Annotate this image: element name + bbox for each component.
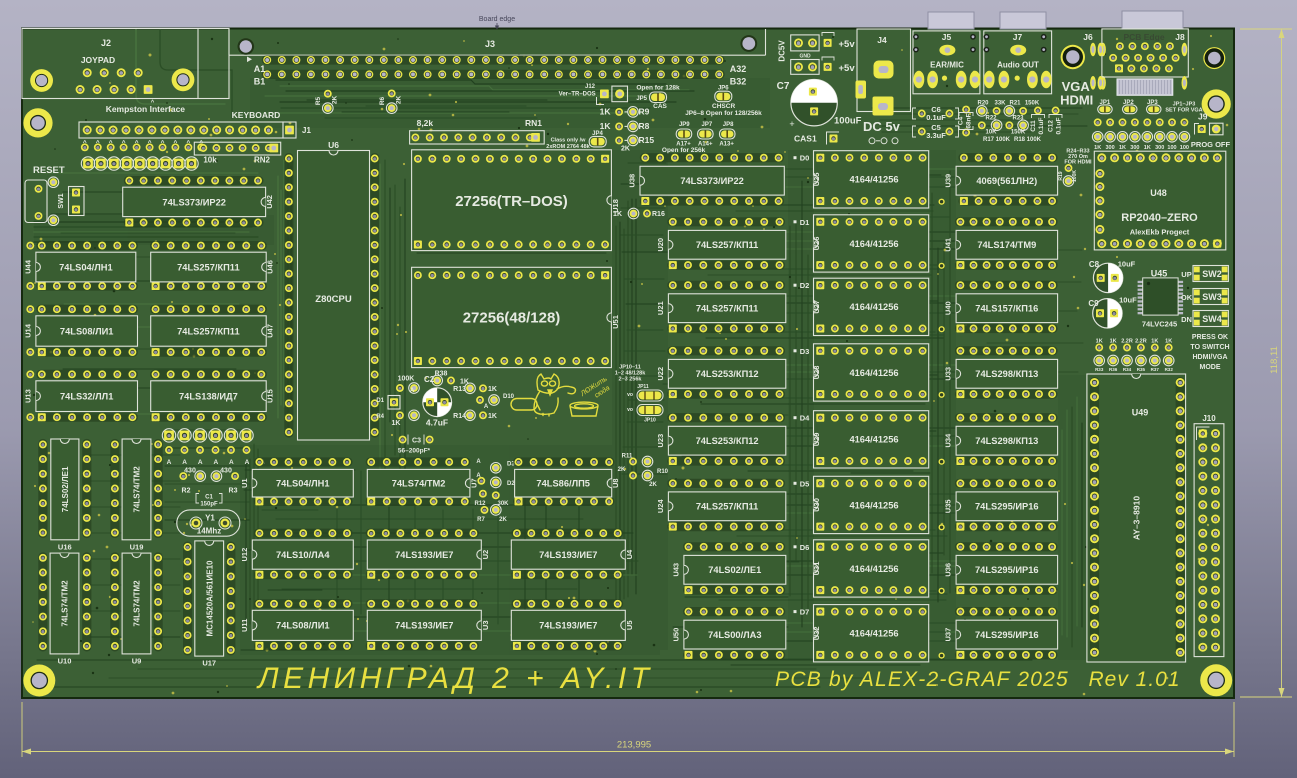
svg-text:1K: 1K	[1144, 145, 1151, 151]
svg-text:DC 5v: DC 5v	[863, 119, 901, 134]
svg-text:0.1uF: 0.1uF	[926, 113, 946, 122]
svg-text:U3: U3	[481, 621, 490, 631]
svg-text:27256(TR–DOS): 27256(TR–DOS)	[455, 193, 568, 210]
svg-text:100: 100	[1180, 145, 1189, 151]
svg-text:4164/41256: 4164/41256	[849, 368, 898, 378]
svg-text:U25: U25	[812, 173, 821, 187]
svg-text:2xROM 2764 48k: 2xROM 2764 48k	[546, 144, 590, 150]
svg-text:U24: U24	[656, 499, 665, 514]
svg-text:4164/41256: 4164/41256	[849, 435, 898, 445]
svg-text:2–3 256k: 2–3 256k	[619, 377, 643, 383]
svg-text:C1: C1	[205, 495, 213, 501]
svg-text:R3: R3	[229, 488, 238, 495]
svg-text:74LS174/ТМ9: 74LS174/ТМ9	[977, 240, 1036, 250]
svg-text:Audio OUT: Audio OUT	[997, 61, 1039, 70]
svg-text:DN: DN	[1181, 315, 1192, 324]
svg-text:RESET: RESET	[33, 165, 65, 176]
svg-text:CAS: CAS	[653, 103, 667, 110]
svg-text:U16: U16	[58, 542, 72, 551]
svg-text:0.1uF: 0.1uF	[1056, 117, 1063, 134]
svg-text:74LS193/ИЕ7: 74LS193/ИЕ7	[539, 621, 597, 631]
svg-text:2K: 2K	[621, 146, 630, 153]
svg-text:1K: 1K	[392, 420, 401, 427]
svg-text:213,995: 213,995	[617, 740, 651, 751]
svg-text:150pF: 150pF	[200, 502, 218, 508]
svg-text:R14: R14	[453, 413, 466, 420]
svg-text:U1: U1	[240, 478, 249, 488]
svg-text:4164/41256: 4164/41256	[849, 175, 898, 185]
svg-text:2K: 2K	[649, 482, 657, 488]
svg-text:PRESS OK: PRESS OK	[1192, 334, 1228, 341]
svg-text:118,11: 118,11	[1269, 346, 1280, 374]
svg-text:PCB by ALEX-2-GRAF 2025: PCB by ALEX-2-GRAF 2025	[775, 668, 1069, 691]
svg-text:74LS295/ИР16: 74LS295/ИР16	[975, 565, 1039, 575]
svg-text:74LS74/ТМ2: 74LS74/ТМ2	[392, 479, 446, 489]
svg-text:U17: U17	[202, 659, 216, 668]
svg-text:Ver–TR–DOS: Ver–TR–DOS	[559, 92, 596, 98]
svg-text:SW3: SW3	[1202, 292, 1222, 302]
svg-text:C4: C4	[958, 116, 965, 125]
svg-text:R15: R15	[639, 135, 655, 145]
svg-text:D6: D6	[800, 543, 810, 552]
svg-text:D1: D1	[800, 218, 810, 227]
svg-text:U44: U44	[23, 259, 32, 274]
svg-text:Z80CPU: Z80CPU	[315, 294, 352, 305]
svg-text:U13: U13	[23, 389, 32, 403]
svg-text:U8: U8	[611, 478, 620, 488]
svg-text:SW1: SW1	[58, 193, 65, 208]
svg-text:C8: C8	[1089, 260, 1100, 269]
svg-text:J10: J10	[1202, 414, 1216, 423]
svg-text:74LVC245: 74LVC245	[1142, 320, 1177, 329]
svg-text:68nF: 68nF	[966, 113, 973, 128]
svg-text:A13+: A13+	[719, 141, 734, 147]
svg-text:D1: D1	[376, 398, 384, 404]
svg-text:U28: U28	[812, 366, 821, 380]
svg-text:A: A	[229, 459, 234, 466]
svg-text:U40: U40	[944, 301, 953, 315]
svg-text:C9: C9	[1088, 299, 1099, 308]
svg-text:U7: U7	[469, 478, 478, 488]
svg-text:U19: U19	[130, 542, 144, 551]
svg-text:R6: R6	[379, 96, 386, 105]
svg-text:RP2040–ZERO: RP2040–ZERO	[1121, 212, 1198, 224]
svg-text:D4: D4	[800, 414, 810, 423]
svg-text:PROG OFF: PROG OFF	[1191, 140, 1231, 149]
svg-text:100uF: 100uF	[834, 116, 862, 127]
svg-text:PCB Edge: PCB Edge	[1123, 32, 1164, 42]
svg-text:1K: 1K	[1119, 145, 1126, 151]
svg-text:U14: U14	[23, 323, 32, 338]
svg-text:74LS193/ИЕ7: 74LS193/ИЕ7	[395, 621, 453, 631]
svg-text:74LS02/ЛЕ1: 74LS02/ЛЕ1	[708, 565, 761, 575]
svg-text:R18 100K: R18 100K	[1014, 137, 1042, 143]
svg-text:74LS295/ИР16: 74LS295/ИР16	[975, 630, 1039, 640]
svg-text:Board edge: Board edge	[479, 16, 515, 23]
svg-text:74LS04/ЛН1: 74LS04/ЛН1	[59, 262, 113, 272]
svg-text:74LS04/ЛН1: 74LS04/ЛН1	[276, 479, 330, 489]
svg-text:74LS157/КП16: 74LS157/КП16	[975, 304, 1038, 314]
svg-text:JOYPAD: JOYPAD	[81, 55, 115, 65]
svg-text:U51: U51	[611, 315, 620, 329]
svg-text:4069(561ЛН2): 4069(561ЛН2)	[976, 176, 1037, 186]
svg-text:U27: U27	[812, 300, 821, 314]
svg-text:A1: A1	[254, 64, 266, 74]
svg-text:CAS1: CAS1	[794, 134, 817, 144]
svg-text:U38: U38	[628, 174, 637, 188]
svg-text:U31: U31	[812, 562, 821, 576]
svg-text:10uF: 10uF	[1118, 260, 1136, 269]
svg-text:U39: U39	[944, 174, 953, 188]
svg-text:J8: J8	[1175, 32, 1185, 42]
svg-text:JP10: JP10	[644, 418, 656, 424]
svg-text:B32: B32	[730, 77, 747, 87]
svg-text:10K: 10K	[985, 130, 997, 136]
svg-text:J4: J4	[877, 35, 887, 45]
svg-text:430: 430	[220, 468, 232, 475]
svg-text:EAR/MIC: EAR/MIC	[930, 61, 964, 70]
svg-text:D2: D2	[800, 281, 810, 290]
svg-text:RN1: RN1	[525, 118, 542, 128]
svg-text:^: ^	[151, 100, 155, 106]
svg-text:D3: D3	[800, 347, 810, 356]
svg-text:1K: 1K	[1094, 145, 1101, 151]
svg-text:Class only /w: Class only /w	[551, 138, 587, 144]
svg-text:R36: R36	[1109, 367, 1118, 372]
svg-text:JP11: JP11	[637, 384, 649, 390]
svg-text:U50: U50	[671, 628, 680, 642]
svg-text:U37: U37	[944, 628, 953, 642]
svg-text:U2: U2	[481, 550, 490, 560]
svg-text:R4: R4	[376, 414, 384, 420]
svg-text:U5: U5	[625, 621, 634, 631]
svg-text:A: A	[484, 404, 489, 410]
svg-text:U4: U4	[625, 549, 634, 559]
svg-text:JP5: JP5	[636, 96, 647, 102]
svg-text:4164/41256: 4164/41256	[849, 302, 898, 312]
svg-text:KEYBOARD: KEYBOARD	[232, 110, 281, 120]
svg-text:J12: J12	[585, 84, 596, 90]
svg-text:SW2: SW2	[1202, 269, 1222, 279]
svg-text:D0: D0	[800, 154, 810, 163]
svg-text:74LS02/ЛЕ1: 74LS02/ЛЕ1	[61, 466, 70, 512]
svg-text:74LS32/ЛЛ1: 74LS32/ЛЛ1	[60, 392, 113, 402]
svg-text:1K: 1K	[488, 386, 497, 393]
svg-text:2K: 2K	[618, 467, 626, 473]
svg-text:U20: U20	[656, 238, 665, 252]
svg-text:U15: U15	[266, 389, 275, 403]
svg-text:A: A	[198, 459, 203, 466]
svg-text:TO SWITCH: TO SWITCH	[1190, 344, 1229, 351]
svg-text:10uF: 10uF	[1119, 296, 1137, 305]
svg-text:vo: vo	[627, 407, 633, 413]
svg-text:R10: R10	[657, 469, 669, 475]
svg-text:74LS257/КП11: 74LS257/КП11	[696, 240, 759, 250]
svg-text:JP7: JP7	[702, 122, 713, 128]
svg-text:R13: R13	[453, 386, 466, 393]
svg-text:MC14520A/561ИЕ10: MC14520A/561ИЕ10	[205, 560, 214, 637]
svg-text:4164/41256: 4164/41256	[849, 564, 898, 574]
svg-text:C2: C2	[424, 375, 435, 384]
svg-text:150K: 150K	[1025, 100, 1040, 106]
svg-text:U49: U49	[1132, 408, 1149, 418]
svg-text:Rev 1.01: Rev 1.01	[1088, 668, 1180, 691]
svg-text:J5: J5	[942, 32, 952, 42]
svg-text:74LS74/ТМ2: 74LS74/ТМ2	[133, 466, 142, 513]
svg-text:vo: vo	[627, 392, 633, 398]
svg-text:JP6–8 Open for 128/256k: JP6–8 Open for 128/256k	[685, 110, 762, 117]
svg-text:74LS373/ИР22: 74LS373/ИР22	[162, 197, 226, 207]
svg-text:R34: R34	[1123, 367, 1132, 372]
svg-text:JP9: JP9	[679, 122, 690, 128]
svg-text:AY–3–8910: AY–3–8910	[1132, 496, 1142, 540]
svg-text:J6: J6	[1083, 32, 1093, 42]
svg-text:J3: J3	[485, 39, 495, 49]
svg-text:33K: 33K	[994, 100, 1006, 106]
svg-text:A: A	[213, 459, 218, 466]
svg-text:U34: U34	[944, 433, 953, 448]
svg-text:R17 100K: R17 100K	[983, 137, 1011, 143]
svg-text:74LS193/ИЕ7: 74LS193/ИЕ7	[395, 550, 453, 560]
svg-text:8,2k: 8,2k	[417, 118, 434, 128]
svg-text:74LS298/КП13: 74LS298/КП13	[975, 436, 1038, 446]
svg-text:J1: J1	[302, 126, 311, 135]
svg-text:R9: R9	[639, 107, 650, 117]
svg-text:74LS00/ЛА3: 74LS00/ЛА3	[708, 630, 762, 640]
svg-text:+: +	[789, 119, 794, 129]
svg-text:74LS08/ЛИ1: 74LS08/ЛИ1	[276, 621, 330, 631]
svg-text:100K: 100K	[1072, 170, 1078, 182]
svg-text:R8: R8	[639, 121, 650, 131]
svg-text:B1: B1	[254, 77, 266, 87]
svg-text:A32: A32	[730, 64, 747, 74]
svg-text:GND: GND	[799, 54, 811, 60]
svg-text:U9: U9	[132, 656, 142, 665]
svg-text:1K: 1K	[613, 211, 622, 218]
svg-text:U42: U42	[265, 195, 274, 209]
svg-text:J2: J2	[101, 38, 111, 48]
svg-text:A: A	[182, 459, 187, 466]
svg-text:UP: UP	[1181, 270, 1191, 279]
svg-text:1K: 1K	[488, 413, 497, 420]
svg-text:2K: 2K	[499, 517, 507, 523]
svg-text:74LS10/ЛА4: 74LS10/ЛА4	[276, 550, 330, 560]
svg-text:2K: 2K	[332, 96, 339, 105]
svg-text:27256(48/128): 27256(48/128)	[463, 310, 561, 327]
svg-text:300: 300	[1106, 145, 1115, 151]
svg-text:HDMI: HDMI	[1060, 93, 1093, 108]
svg-text:10k: 10k	[203, 156, 217, 165]
svg-text:74LS74/ТМ2: 74LS74/ТМ2	[61, 580, 70, 627]
svg-text:U22: U22	[656, 367, 665, 381]
svg-text:0.1uF: 0.1uF	[1038, 117, 1045, 134]
svg-text:D7: D7	[800, 608, 810, 617]
svg-text:74LS253/КП12: 74LS253/КП12	[696, 436, 759, 446]
svg-text:AlexEkb Progect: AlexEkb Progect	[1130, 228, 1190, 237]
svg-text:300: 300	[1155, 145, 1164, 151]
svg-text:74LS257/КП11: 74LS257/КП11	[177, 326, 240, 336]
svg-text:ЛЕНИНГРАД 2 + AY.IT: ЛЕНИНГРАД 2 + AY.IT	[256, 662, 654, 695]
svg-text:U12: U12	[240, 548, 249, 562]
svg-text:4164/41256: 4164/41256	[849, 500, 898, 510]
svg-text:U23: U23	[656, 434, 665, 448]
svg-text:U36: U36	[944, 563, 953, 577]
svg-text:U33: U33	[944, 367, 953, 381]
svg-text:4164/41256: 4164/41256	[849, 629, 898, 639]
svg-text:U35: U35	[944, 499, 953, 513]
svg-text:4164/41256: 4164/41256	[849, 239, 898, 249]
svg-text:C7: C7	[777, 81, 790, 92]
svg-text:MODE: MODE	[1200, 364, 1221, 371]
svg-text:1K: 1K	[600, 121, 612, 131]
svg-text:U21: U21	[656, 301, 665, 315]
svg-text:74LS74/ТМ2: 74LS74/ТМ2	[133, 580, 142, 627]
svg-text:J7: J7	[1013, 32, 1023, 42]
svg-text:C3: C3	[412, 438, 421, 445]
svg-text:A: A	[476, 459, 481, 465]
svg-text:U32: U32	[812, 626, 821, 640]
svg-text:U41: U41	[944, 238, 953, 252]
svg-text:74LS138/ИД7: 74LS138/ИД7	[179, 392, 238, 402]
svg-text:R32: R32	[1165, 367, 1174, 372]
svg-text:U29: U29	[812, 433, 821, 447]
svg-text:D5: D5	[800, 479, 810, 488]
svg-text:U47: U47	[266, 324, 275, 338]
svg-text:R16: R16	[652, 211, 665, 218]
svg-text:74LS253/КП12: 74LS253/КП12	[696, 369, 759, 379]
svg-text:Y1: Y1	[205, 514, 215, 523]
svg-text:U26: U26	[812, 237, 821, 251]
svg-text:74LS257/КП11: 74LS257/КП11	[177, 262, 240, 272]
svg-text:R33: R33	[1095, 367, 1104, 372]
svg-text:+5v: +5v	[839, 39, 856, 50]
svg-text:OK: OK	[1181, 293, 1193, 302]
svg-text:100K: 100K	[398, 376, 415, 383]
svg-text:U43: U43	[671, 563, 680, 577]
svg-text:U11: U11	[240, 619, 249, 632]
svg-text:74LS257/КП11: 74LS257/КП11	[696, 502, 759, 512]
svg-text:RN2: RN2	[254, 156, 271, 165]
svg-text:U45: U45	[1151, 269, 1168, 279]
svg-text:R5: R5	[315, 96, 322, 105]
svg-text:SW4: SW4	[1202, 314, 1222, 324]
svg-text:U6: U6	[328, 140, 339, 150]
svg-text:3.3uF: 3.3uF	[926, 131, 946, 140]
svg-text:C11: C11	[1030, 120, 1037, 132]
svg-text:56–200pF*: 56–200pF*	[398, 448, 431, 455]
svg-text:A: A	[410, 388, 415, 394]
svg-text:+5v: +5v	[839, 63, 856, 74]
svg-text:HDMI/VGA: HDMI/VGA	[1193, 354, 1228, 361]
svg-text:300: 300	[1130, 145, 1139, 151]
svg-text:Open for 128k: Open for 128k	[636, 84, 680, 91]
svg-text:R7: R7	[477, 517, 485, 523]
svg-text:R2: R2	[182, 488, 191, 495]
svg-text:JP6: JP6	[718, 85, 729, 91]
svg-text:74LS298/КП13: 74LS298/КП13	[975, 369, 1038, 379]
svg-text:4.7uF: 4.7uF	[426, 418, 448, 428]
svg-text:U30: U30	[812, 498, 821, 512]
svg-text:U46: U46	[266, 260, 275, 274]
svg-text:R19: R19	[1058, 171, 1064, 180]
svg-text:74LS373/ИР22: 74LS373/ИР22	[680, 176, 744, 186]
svg-text:DC5V: DC5V	[778, 40, 787, 62]
svg-text:2K: 2K	[396, 96, 403, 105]
svg-text:74LS193/ИЕ7: 74LS193/ИЕ7	[539, 550, 597, 560]
svg-text:1K: 1K	[460, 379, 469, 386]
svg-text:J9: J9	[1198, 112, 1208, 122]
svg-text:100: 100	[1167, 145, 1176, 151]
svg-text:U10: U10	[58, 656, 72, 665]
svg-text:150K: 150K	[1011, 130, 1026, 136]
svg-text:C12: C12	[1048, 120, 1055, 132]
svg-text:74LS295/ИР16: 74LS295/ИР16	[975, 502, 1039, 512]
svg-text:R37: R37	[1151, 367, 1160, 372]
svg-text:74LS257/КП11: 74LS257/КП11	[696, 304, 759, 314]
svg-text:Kempston Interface: Kempston Interface	[106, 104, 186, 114]
svg-text:U48: U48	[1150, 188, 1167, 198]
svg-text:A: A	[167, 459, 172, 466]
svg-text:A: A	[245, 459, 250, 466]
svg-text:R35: R35	[1137, 367, 1146, 372]
svg-text:JP8: JP8	[723, 122, 734, 128]
svg-text:74LS08/ЛИ1: 74LS08/ЛИ1	[60, 326, 114, 336]
svg-text:1K: 1K	[600, 107, 612, 117]
svg-text:14Mhz: 14Mhz	[197, 527, 221, 536]
svg-text:74LS86/ЛП5: 74LS86/ЛП5	[536, 479, 590, 489]
